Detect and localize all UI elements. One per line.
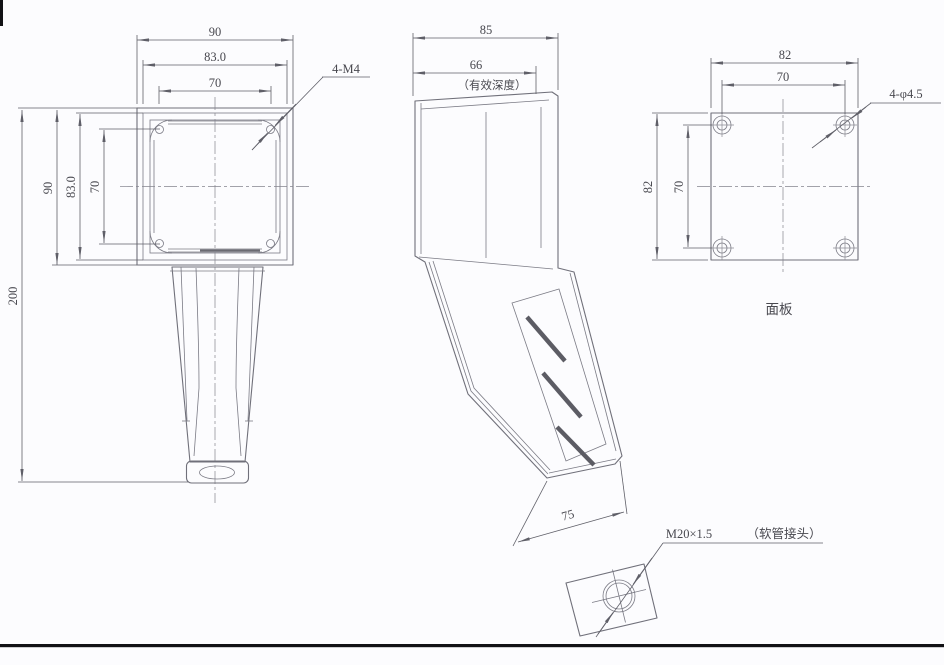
grip-stripes xyxy=(527,317,594,465)
dim-handle-bottom: 75 xyxy=(560,507,576,524)
label-hose-connector: （软管接头） xyxy=(746,526,821,541)
technical-drawing-sheet: 90 83.0 70 4-M4 200 90 83.0 70 xyxy=(0,0,944,665)
dim-front-height-lid: 83.0 xyxy=(64,176,78,198)
callout-thread-4m4: 4-M4 xyxy=(332,62,361,76)
dim-front-height-holes: 70 xyxy=(88,181,102,194)
callout-hole-4phi45: 4-φ4.5 xyxy=(889,87,922,101)
dim-panel-hole-spacing-v: 70 xyxy=(672,181,686,194)
dim-side-depth-effective: 66 xyxy=(470,58,483,72)
dim-front-height-outer: 90 xyxy=(41,182,55,195)
connector-detail: M20×1.5 （软管接头） xyxy=(566,526,823,637)
label-thread-spec: M20×1.5 xyxy=(666,527,712,541)
label-panel: 面板 xyxy=(766,302,794,317)
panel-view-dimensions: 82 70 82 70 4-φ4.5 xyxy=(641,48,941,260)
dim-front-width-outer: 90 xyxy=(209,25,222,39)
dim-front-total-height: 200 xyxy=(6,287,20,306)
dim-panel-hole-spacing-h: 70 xyxy=(777,70,790,84)
drawing-canvas: 90 83.0 70 4-M4 200 90 83.0 70 xyxy=(0,0,944,665)
side-view-dimensions: 85 66 （有效深度） 75 xyxy=(413,23,627,546)
front-view-dimensions: 90 83.0 70 4-M4 200 90 83.0 70 xyxy=(6,25,370,482)
side-view xyxy=(415,92,622,478)
front-view xyxy=(120,97,310,503)
dim-front-width-holes: 70 xyxy=(209,76,222,90)
panel-view: 面板 xyxy=(697,99,871,317)
dim-side-depth-outer: 85 xyxy=(480,23,493,37)
dim-panel-height: 82 xyxy=(641,181,655,194)
dim-panel-width: 82 xyxy=(779,48,792,62)
label-effective-depth: （有效深度） xyxy=(458,78,527,92)
dim-front-width-lid: 83.0 xyxy=(204,50,226,64)
